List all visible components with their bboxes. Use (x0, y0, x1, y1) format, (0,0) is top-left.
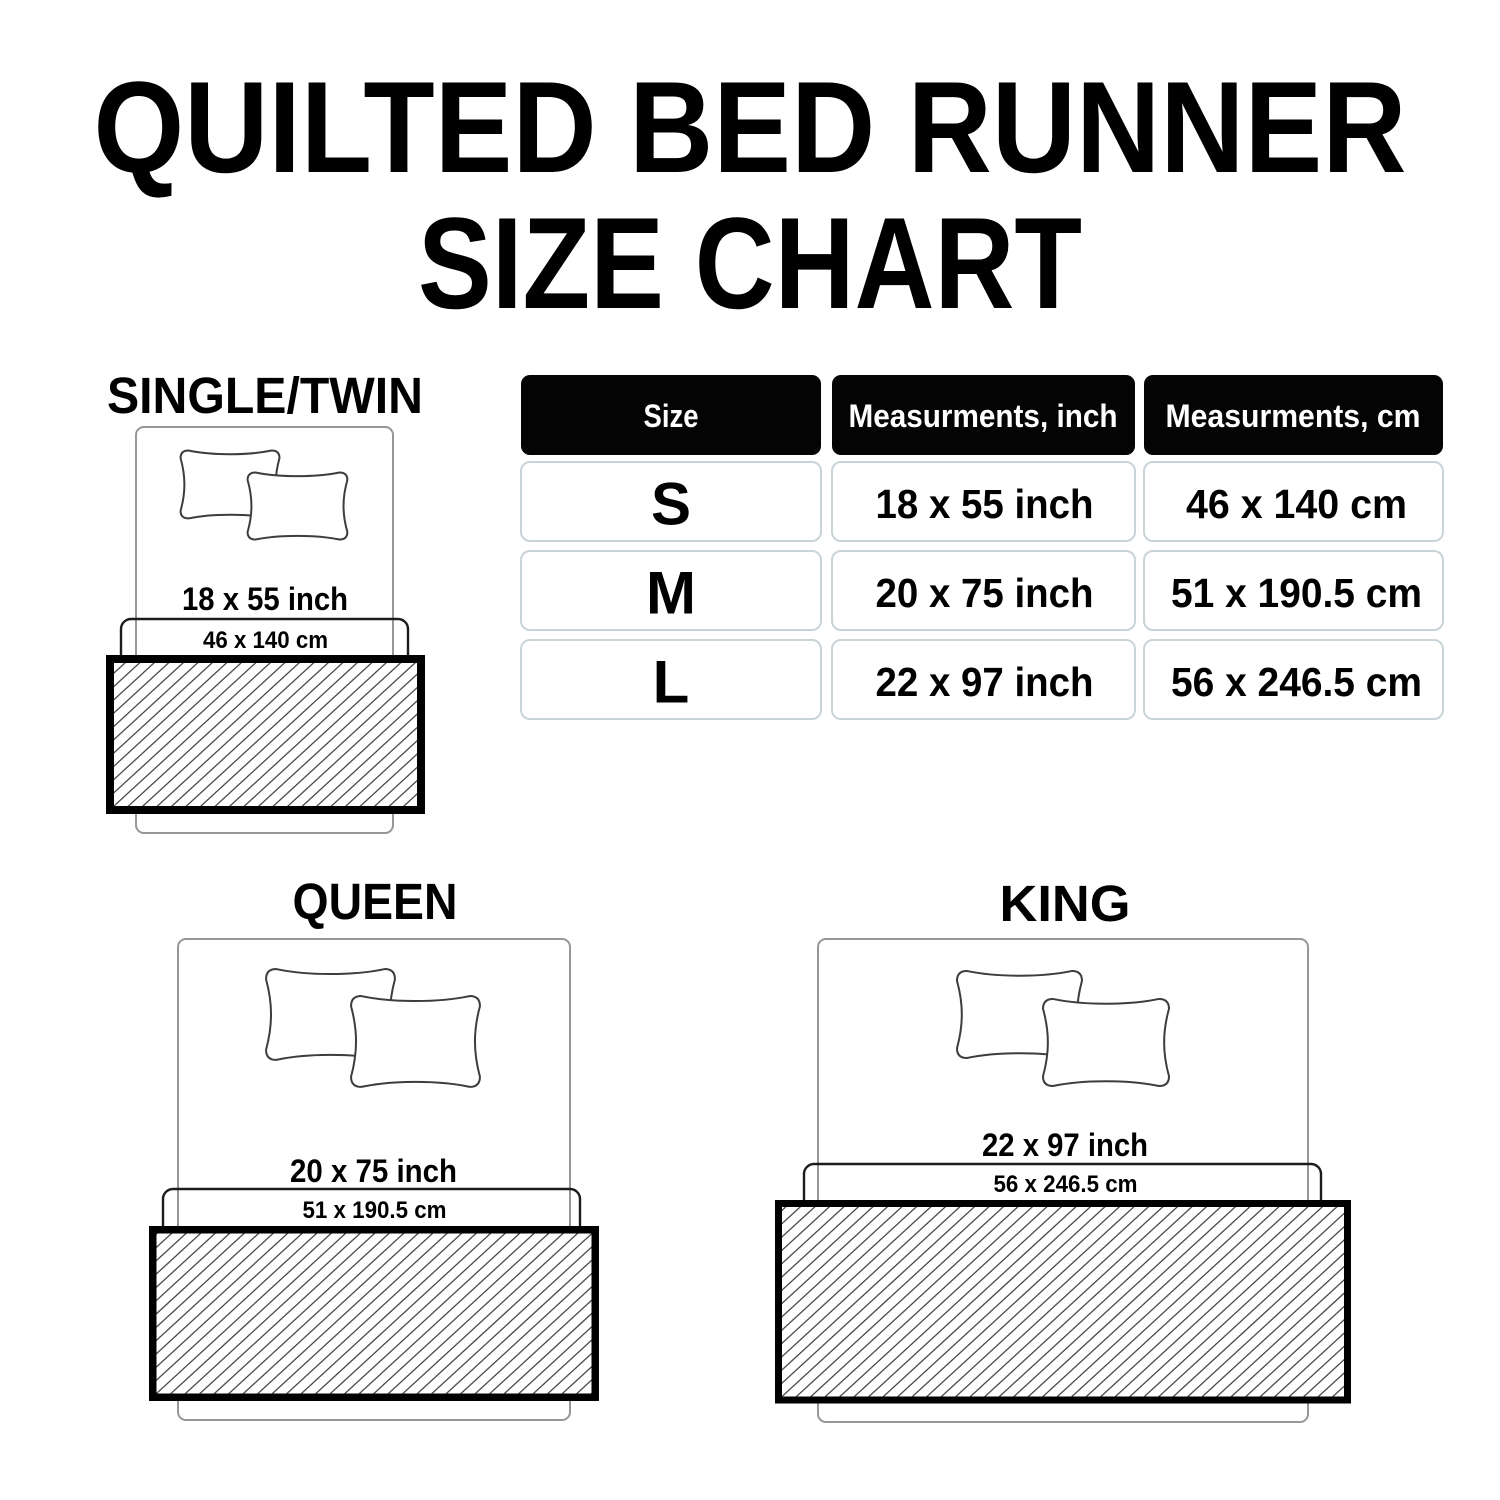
svg-text:51 x 190.5 cm: 51 x 190.5 cm (303, 1197, 447, 1224)
svg-text:SIZE CHART: SIZE CHART (418, 190, 1082, 336)
svg-text:L: L (653, 649, 690, 716)
svg-text:SINGLE/TWIN: SINGLE/TWIN (107, 367, 423, 424)
svg-text:Measurments, inch: Measurments, inch (849, 398, 1118, 434)
svg-text:M: M (646, 560, 696, 627)
svg-text:18 x 55 inch: 18 x 55 inch (182, 581, 348, 617)
svg-text:18 x 55 inch: 18 x 55 inch (876, 481, 1094, 527)
svg-text:QUILTED BED RUNNER: QUILTED BED RUNNER (94, 54, 1407, 200)
svg-text:QUEEN: QUEEN (293, 873, 458, 930)
svg-text:51 x 190.5 cm: 51 x 190.5 cm (1171, 570, 1422, 616)
svg-text:Measurments, cm: Measurments, cm (1166, 398, 1421, 434)
svg-text:KING: KING (1000, 875, 1131, 932)
svg-text:46 x 140 cm: 46 x 140 cm (203, 627, 328, 654)
svg-text:22 x 97 inch: 22 x 97 inch (876, 659, 1094, 705)
svg-text:S: S (651, 471, 691, 538)
svg-text:20 x 75 inch: 20 x 75 inch (876, 570, 1094, 616)
svg-text:56 x 246.5 cm: 56 x 246.5 cm (1171, 659, 1422, 705)
svg-text:22 x 97 inch: 22 x 97 inch (982, 1127, 1148, 1163)
svg-text:20 x 75 inch: 20 x 75 inch (290, 1153, 457, 1189)
svg-text:Size: Size (644, 398, 699, 434)
svg-text:46 x 140 cm: 46 x 140 cm (1186, 481, 1407, 527)
svg-text:56 x 246.5 cm: 56 x 246.5 cm (994, 1171, 1138, 1198)
